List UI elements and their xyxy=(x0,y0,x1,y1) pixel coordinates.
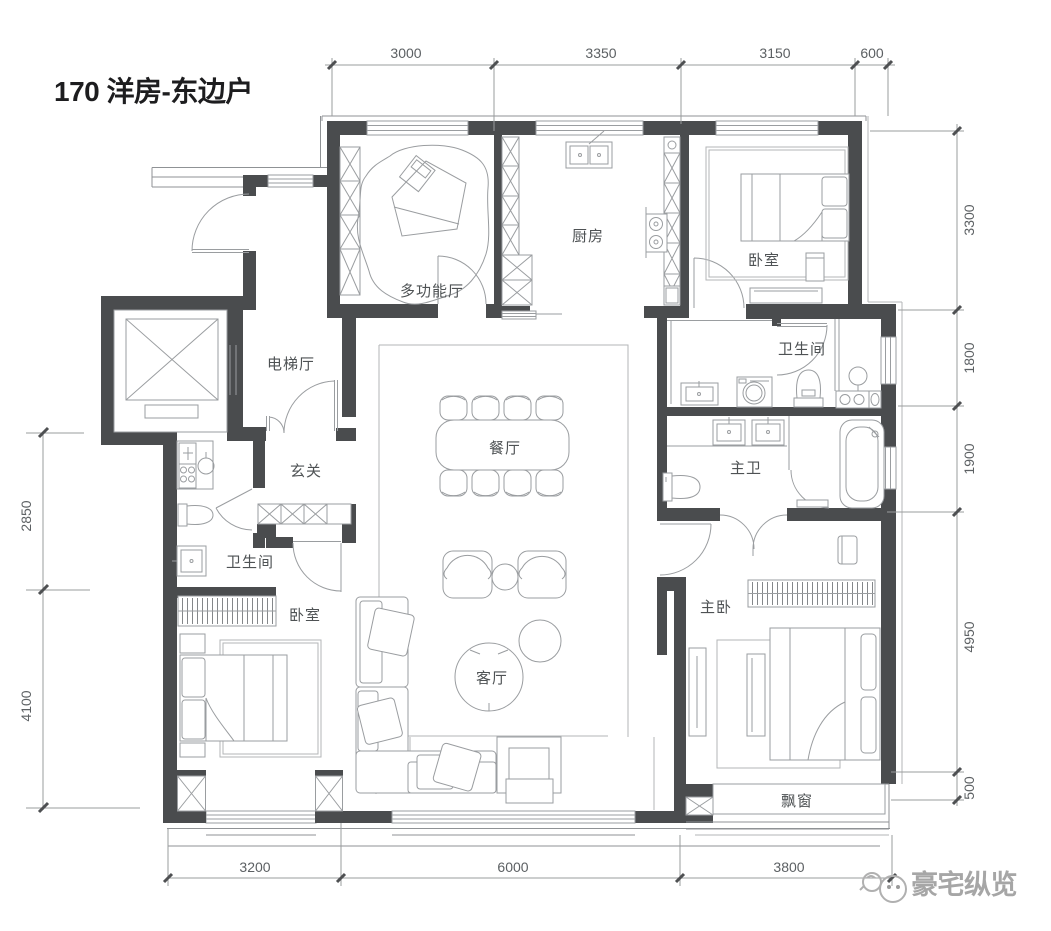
svg-text:卫生间: 卫生间 xyxy=(778,341,826,358)
svg-text:3150: 3150 xyxy=(759,45,790,61)
svg-text:6000: 6000 xyxy=(497,859,528,875)
svg-text:卧室: 卧室 xyxy=(289,607,321,624)
svg-text:厨房: 厨房 xyxy=(572,228,604,245)
svg-text:2850: 2850 xyxy=(18,500,34,531)
svg-text:客厅: 客厅 xyxy=(476,670,508,687)
svg-text:3300: 3300 xyxy=(961,204,977,235)
svg-text:500: 500 xyxy=(961,776,977,800)
svg-text:600: 600 xyxy=(860,45,884,61)
svg-text:3350: 3350 xyxy=(585,45,616,61)
svg-text:餐厅: 餐厅 xyxy=(489,440,521,457)
svg-text:4100: 4100 xyxy=(18,690,34,721)
svg-text:豪宅纵览: 豪宅纵览 xyxy=(911,869,1017,900)
svg-text:170 洋房-东边户: 170 洋房-东边户 xyxy=(54,75,253,107)
svg-text:4950: 4950 xyxy=(961,621,977,652)
svg-text:主卧: 主卧 xyxy=(700,599,732,616)
svg-text:3800: 3800 xyxy=(773,859,804,875)
svg-text:3200: 3200 xyxy=(239,859,270,875)
svg-text:1800: 1800 xyxy=(961,342,977,373)
svg-text:玄关: 玄关 xyxy=(290,463,322,480)
svg-text:卧室: 卧室 xyxy=(748,252,780,269)
svg-text:多功能厅: 多功能厅 xyxy=(400,283,464,300)
svg-text:飘窗: 飘窗 xyxy=(781,792,813,810)
svg-text:3000: 3000 xyxy=(390,45,421,61)
svg-text:主卫: 主卫 xyxy=(730,460,762,477)
svg-text:电梯厅: 电梯厅 xyxy=(267,356,315,373)
svg-text:1900: 1900 xyxy=(961,443,977,474)
svg-text:卫生间: 卫生间 xyxy=(226,554,274,571)
